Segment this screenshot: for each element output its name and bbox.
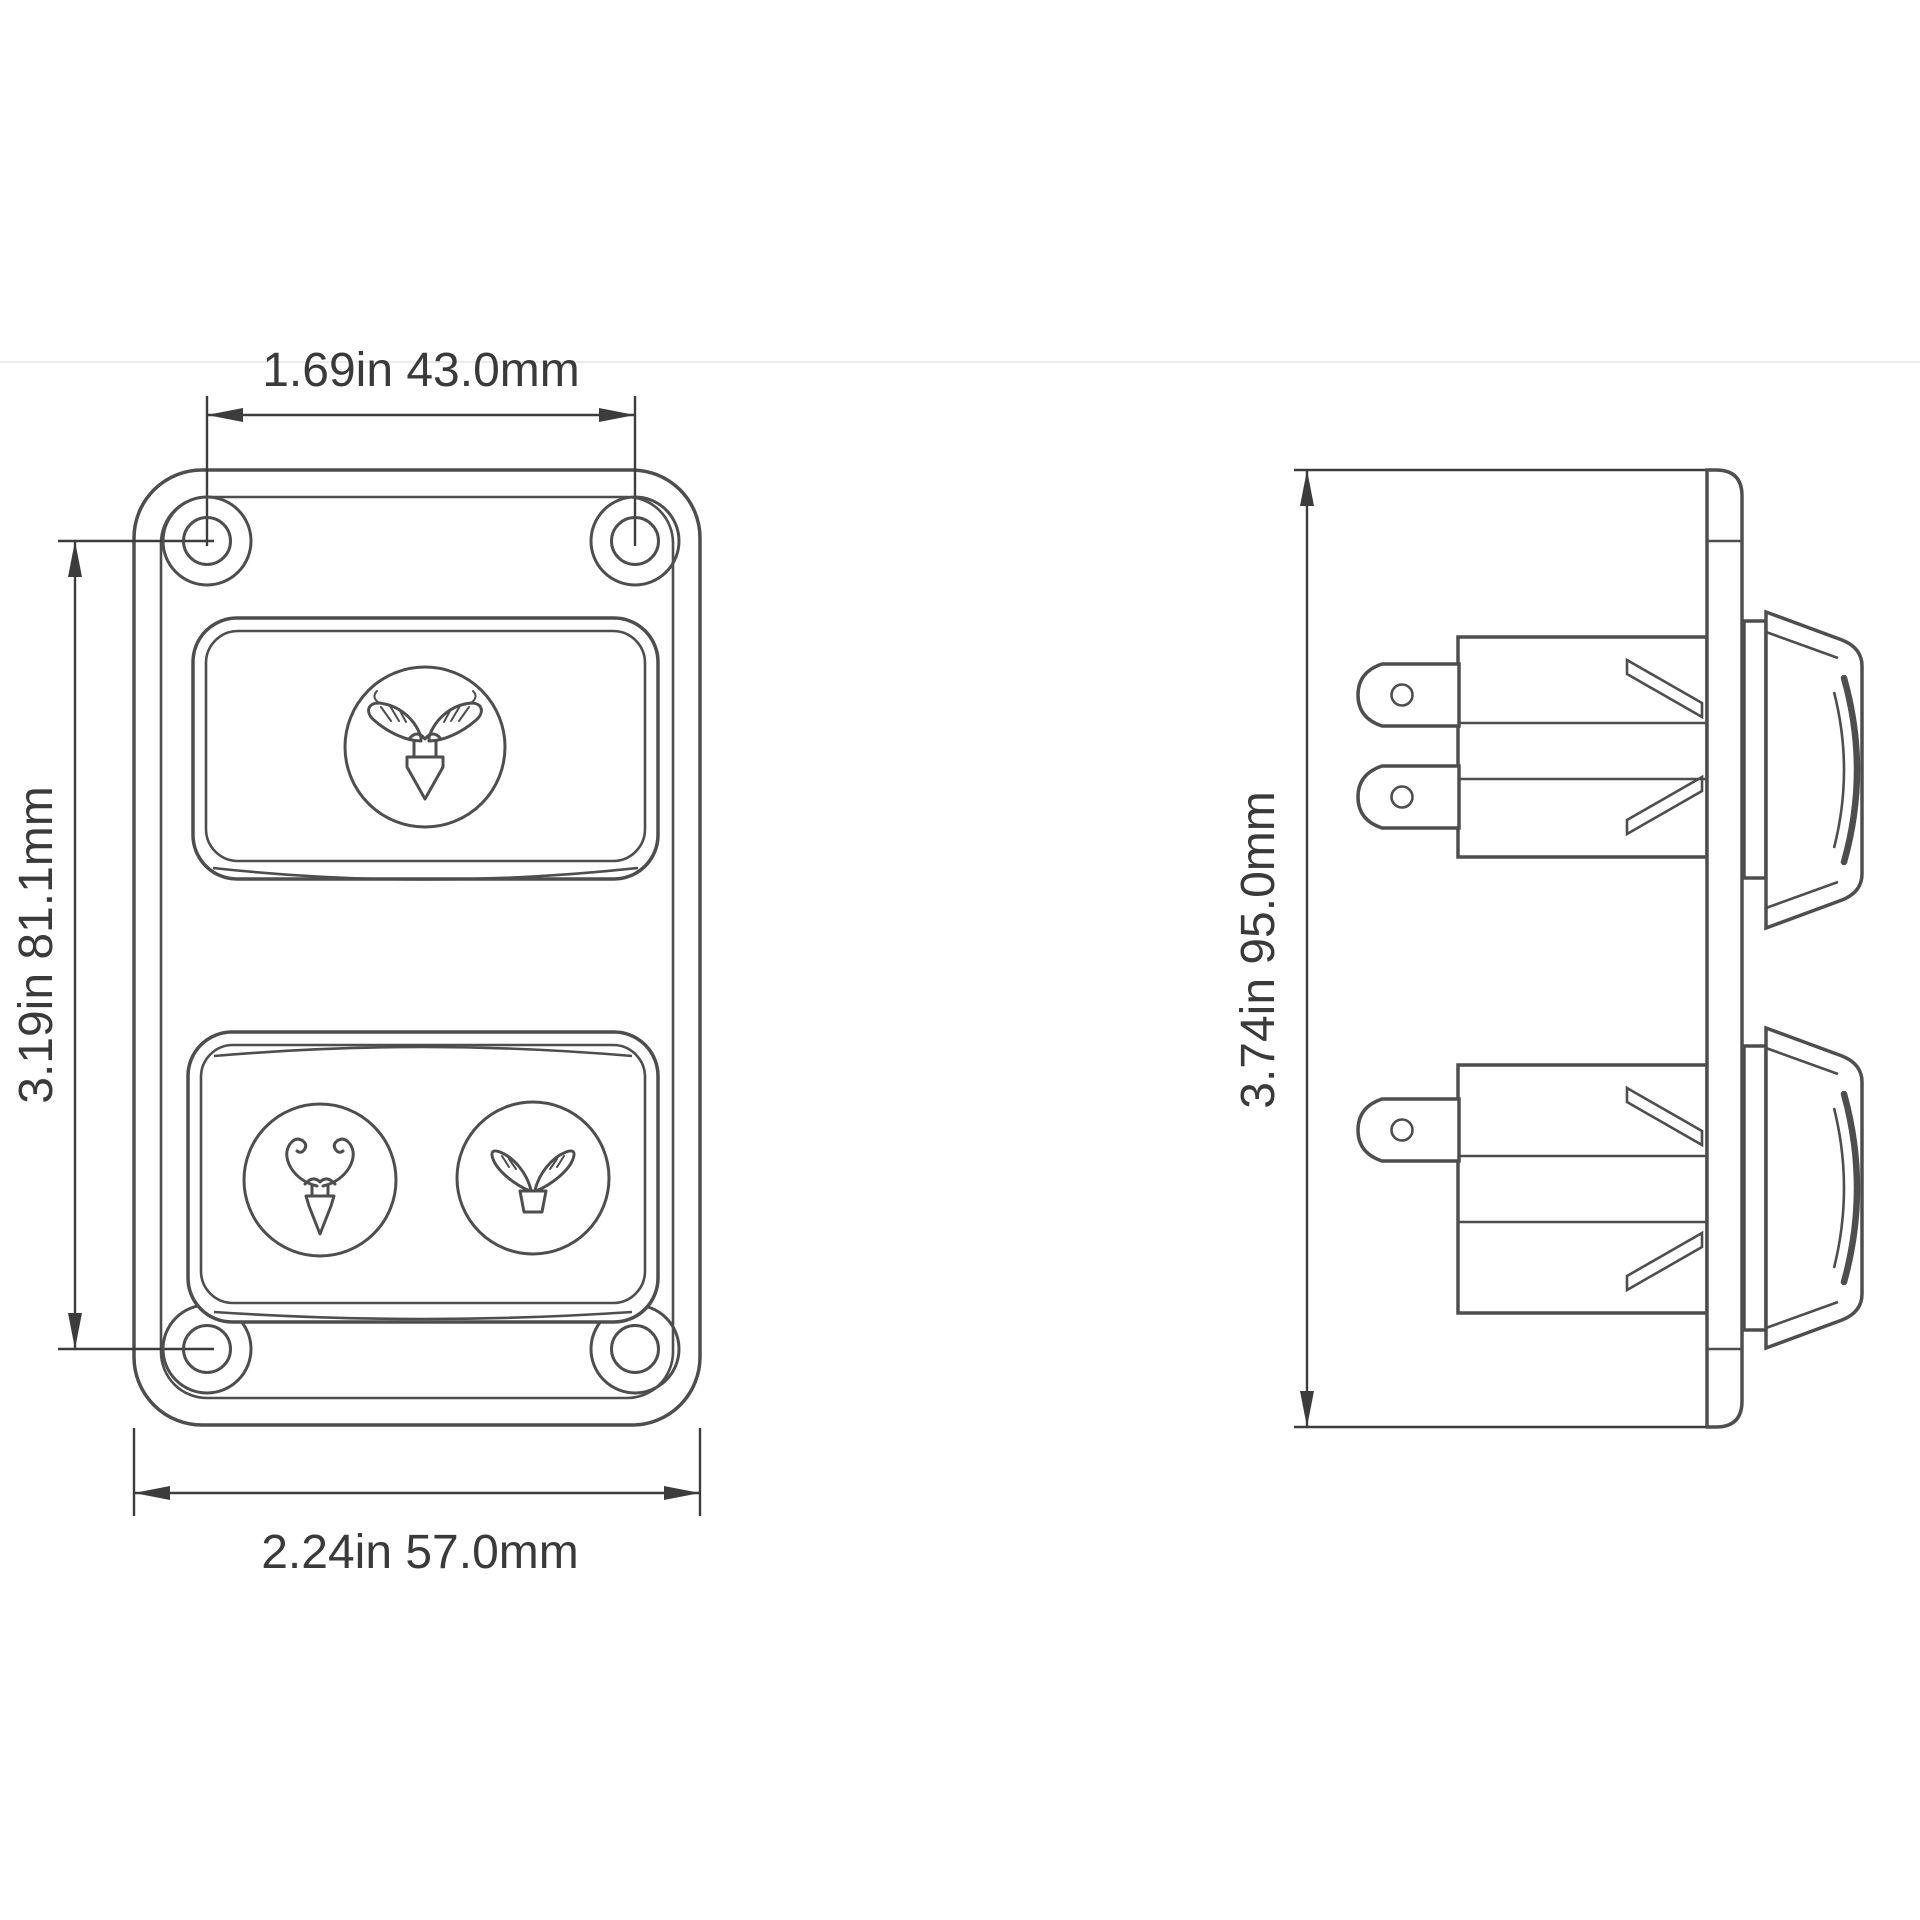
rocker-switch-1 xyxy=(193,618,658,880)
switch-body-top xyxy=(1358,637,1707,857)
switch-housing xyxy=(1458,1065,1707,1313)
arrowhead-bottom xyxy=(1300,1391,1314,1427)
actuator-flange xyxy=(1744,621,1766,878)
plate-outline xyxy=(1707,470,1742,1427)
actuator-bezel xyxy=(1766,1028,1862,1348)
dim-overall-width: 2.24in 57.0mm xyxy=(134,1428,700,1579)
technical-drawing-page: 1.69in 43.0mm 3.19in 81.1mm 2.24in 57.0m… xyxy=(0,0,1920,1920)
spade-terminal xyxy=(1358,766,1459,828)
dimension-label-overall-width: 2.24in 57.0mm xyxy=(261,1526,579,1579)
arrowhead-right xyxy=(599,408,635,422)
spade-terminal xyxy=(1358,1099,1459,1161)
rocker-bezel xyxy=(193,618,658,879)
spade-terminal xyxy=(1358,664,1459,726)
dimension-drawing-svg: 1.69in 43.0mm 3.19in 81.1mm 2.24in 57.0m… xyxy=(0,0,1920,1920)
rocker-actuator-bottom xyxy=(1744,1028,1862,1348)
arrowhead-right xyxy=(664,1486,700,1500)
front-view: 1.69in 43.0mm 3.19in 81.1mm 2.24in 57.0m… xyxy=(10,344,700,1579)
arrowhead-left xyxy=(207,408,243,422)
rocker-actuator-top xyxy=(1744,612,1862,928)
dimension-label-hole-spacing-width: 1.69in 43.0mm xyxy=(262,344,580,397)
arrowhead-left xyxy=(134,1486,170,1500)
rocker-bezel xyxy=(188,1032,658,1322)
arrowhead-top xyxy=(1300,470,1314,506)
side-view: 3.74in 95.0mm xyxy=(1232,470,1862,1427)
dimension-label-overall-height: 3.74in 95.0mm xyxy=(1232,791,1285,1109)
arrowhead-bottom xyxy=(68,1313,82,1349)
dimension-label-hole-spacing-height: 3.19in 81.1mm xyxy=(10,786,63,1104)
switch-housing xyxy=(1458,637,1707,857)
actuator-bezel xyxy=(1766,612,1862,928)
rocker-switch-2 xyxy=(188,1032,658,1322)
arrowhead-top xyxy=(68,541,82,577)
actuator-flange xyxy=(1744,1046,1766,1330)
switch-body-bottom xyxy=(1358,1065,1707,1313)
panel-plate-side xyxy=(1707,470,1742,1427)
